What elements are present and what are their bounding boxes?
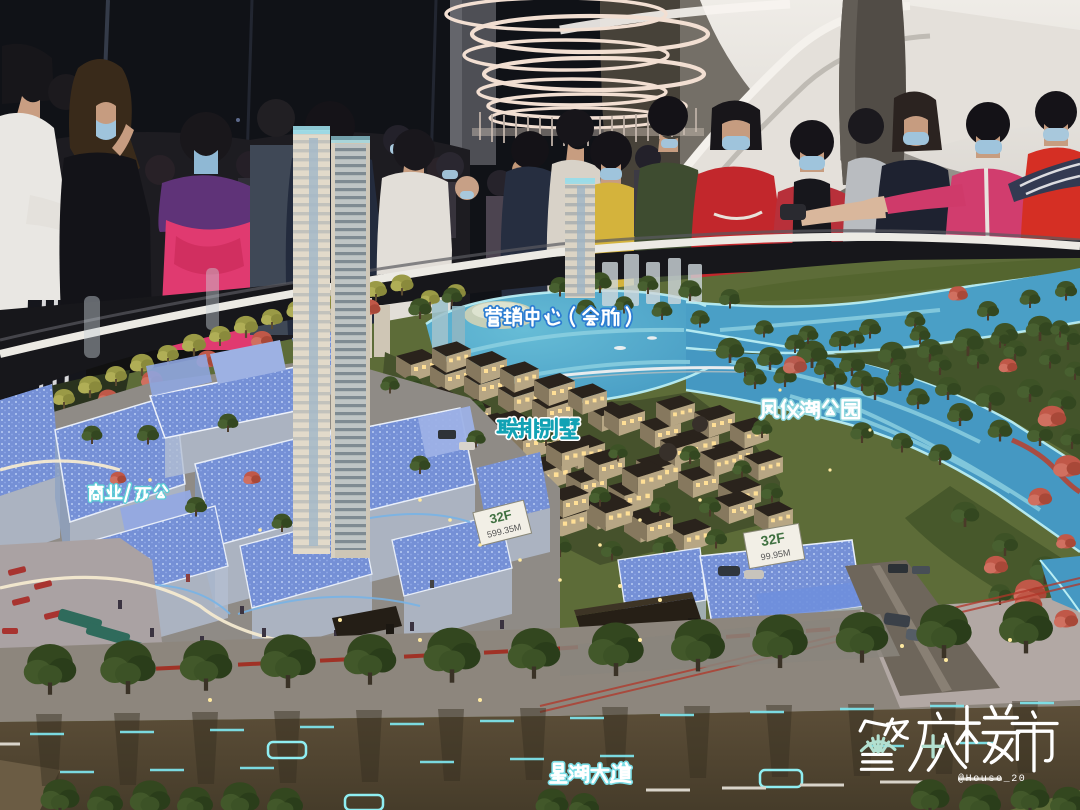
svg-text:@House_20: @House_20 (958, 773, 1026, 785)
